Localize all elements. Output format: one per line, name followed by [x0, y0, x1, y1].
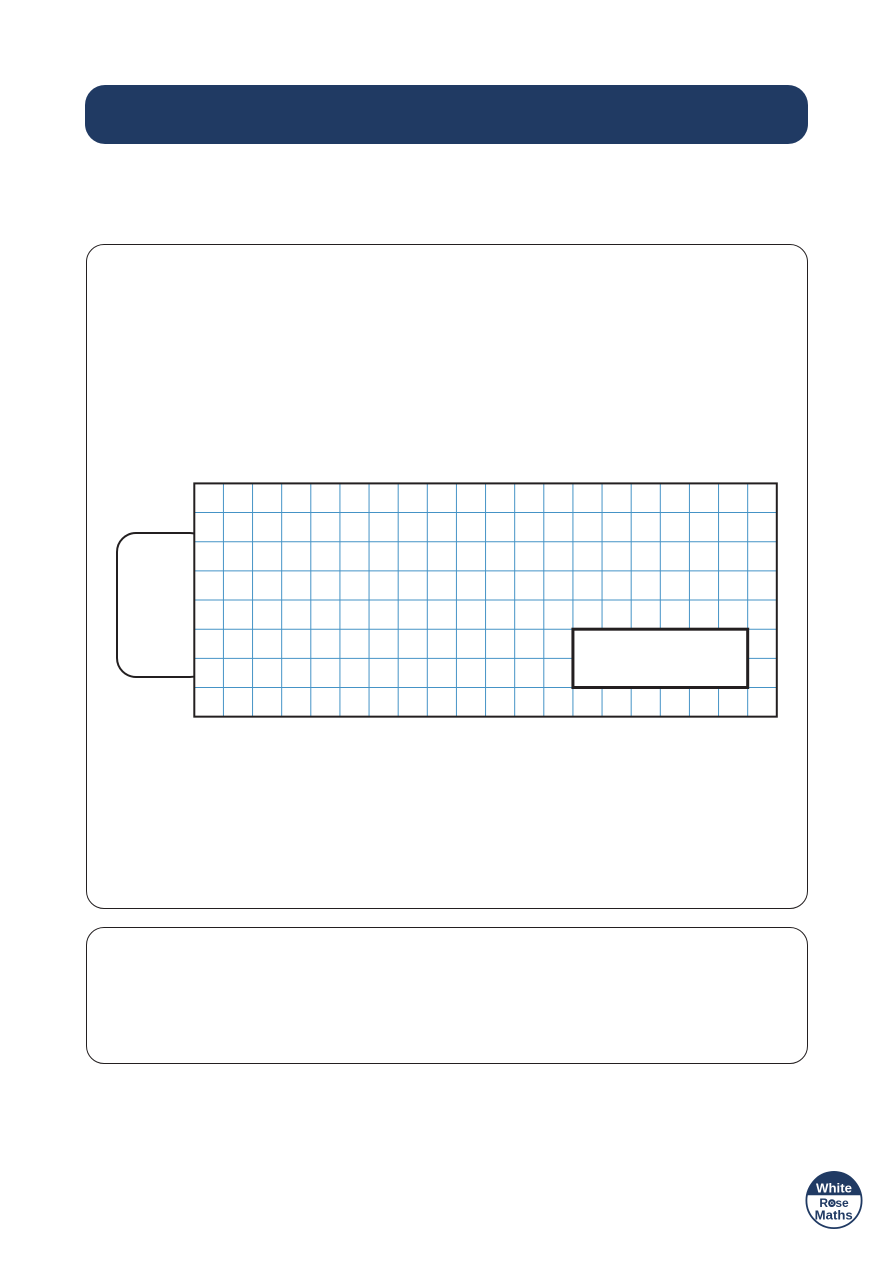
svg-text:White: White — [816, 1181, 852, 1196]
svg-text:Maths: Maths — [815, 1207, 853, 1222]
